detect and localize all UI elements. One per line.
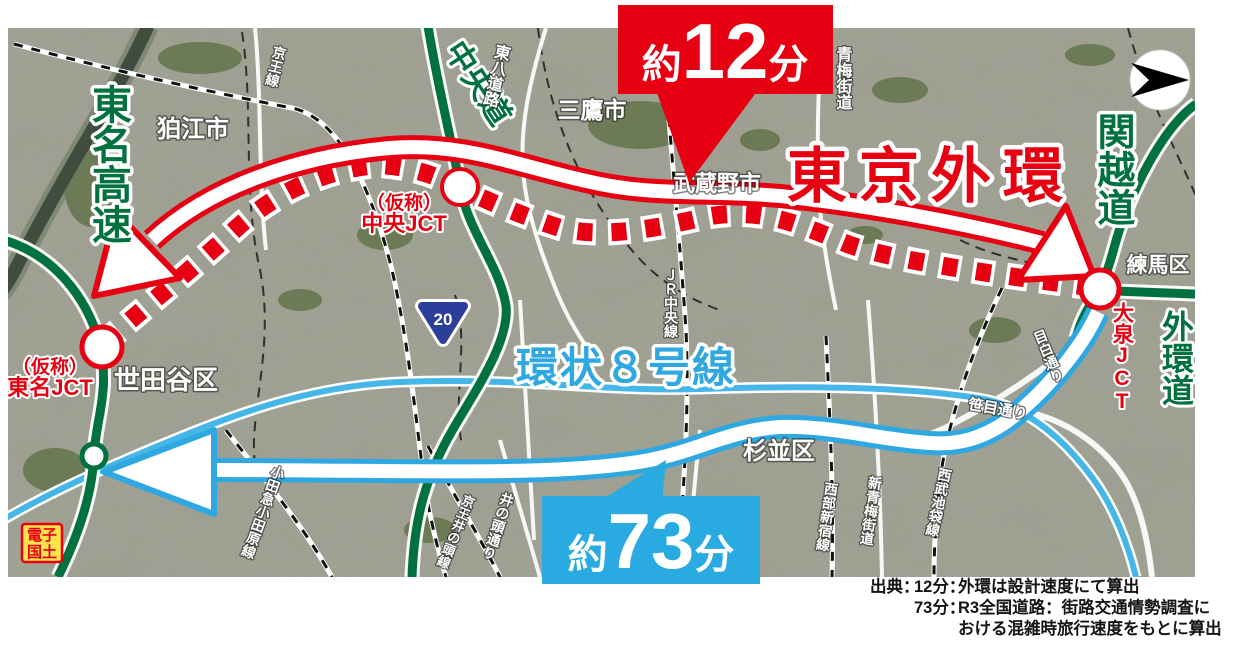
route-map: 20 電子 国土 東名高速 中央道 関越道 外環道 東京外環 環状８号線 （仮称… — [0, 0, 1240, 650]
source-row2-text: R3全国道路：街路交通情勢調査に — [958, 597, 1210, 617]
callout-12min-suffix: 分 — [768, 43, 808, 87]
gaikan-route-title: 東京外環 — [787, 143, 1075, 210]
source-row3-text: おける混雑時旅行速度をもとに算出 — [958, 618, 1222, 638]
route20-number: 20 — [434, 310, 453, 329]
area-label-setagaya: 世田谷区 — [114, 365, 218, 395]
callout-73min-value: 73 — [608, 497, 695, 585]
tomei-ic-marker — [82, 444, 106, 468]
tokyo-gaikan-map-page: 20 電子 国土 東名高速 中央道 関越道 外環道 東京外環 環状８号線 （仮称… — [0, 0, 1240, 650]
kanjo8-route-title: 環状８号線 — [516, 344, 736, 391]
tomei-expressway-label: 東名高速 — [86, 84, 132, 244]
callout-73min-suffix: 分 — [694, 533, 734, 577]
area-label-suginami: 杉並区 — [743, 437, 815, 465]
area-label-komae: 狛江市 — [157, 115, 229, 143]
source-label: 出典： — [870, 576, 920, 596]
chuo-jct-marker — [442, 169, 478, 205]
stamp-line1: 電子 — [27, 527, 57, 544]
source-note: 出典： 12分： 外環は設計速度にて算出 73分： R3全国道路：街路交通情勢調… — [870, 576, 1222, 638]
callout-73min-prefix: 約 — [568, 533, 608, 577]
chuo-jct-label-line2: 中央JCT — [361, 211, 447, 236]
jr-chuo-line-label: ＪＲ中央線 — [663, 268, 679, 339]
area-label-mitaka: 三鷹市 — [558, 97, 627, 123]
denshi-kokudo-stamp: 電子 国土 — [22, 524, 62, 562]
kanetsu-expressway-label: 関越道 — [1091, 112, 1135, 226]
compass-icon — [1130, 50, 1190, 110]
callout-12min-value: 12 — [682, 7, 769, 95]
gaikan-expressway-label: 外環道 — [1158, 310, 1194, 406]
source-row1-text: 外環は設計速度にて算出 — [958, 576, 1140, 596]
stamp-line2: 国土 — [27, 543, 57, 561]
tomei-jct-label-line2: 東名JCT — [7, 375, 93, 400]
area-label-nerima: 練馬区 — [1127, 253, 1190, 277]
oizumi-jct-label: 大泉JCT — [1111, 302, 1135, 413]
callout-12min-prefix: 約 — [642, 43, 682, 87]
